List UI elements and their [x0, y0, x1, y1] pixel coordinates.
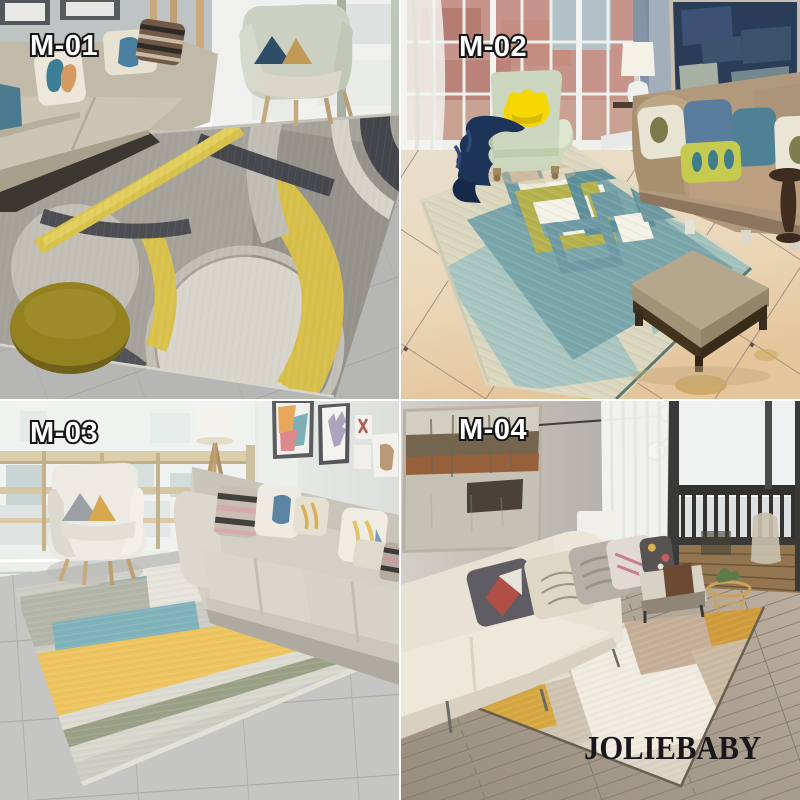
svg-text:M-04: M-04	[459, 414, 527, 446]
svg-text:M-02: M-02	[459, 31, 527, 63]
svg-text:M-01: M-01	[30, 30, 98, 62]
svg-text:JOLIEBABY: JOLIEBABY	[584, 730, 761, 767]
svg-text:M-03: M-03	[30, 417, 98, 449]
